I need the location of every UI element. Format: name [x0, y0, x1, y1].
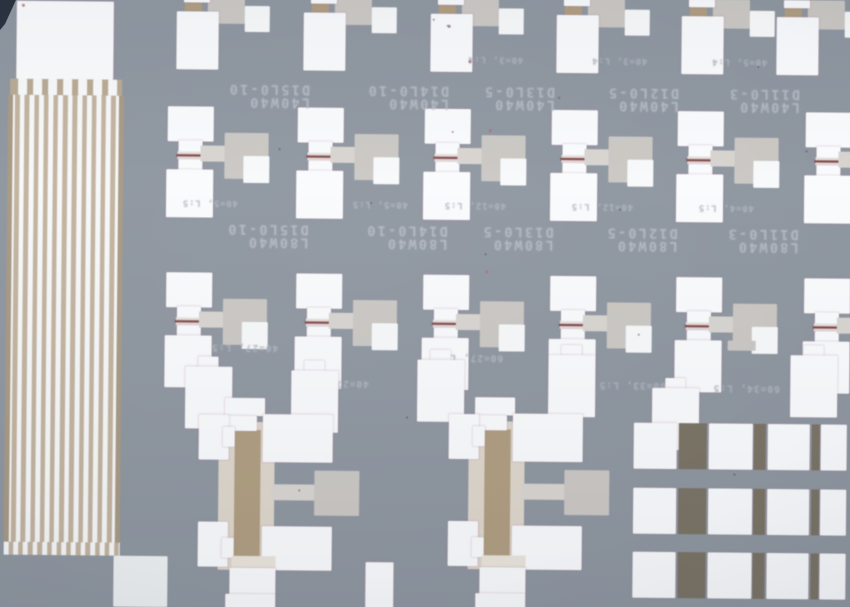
- grid-bond-pad: [820, 424, 846, 470]
- plate-window: [372, 7, 397, 33]
- serpentine-bottom-turns: [4, 542, 120, 556]
- device-annotation: 40=12, L:5: [442, 199, 508, 211]
- bond-pad: [303, 12, 346, 70]
- pad-neck: [784, 0, 810, 8]
- device-annotation: 60=34, L:5: [711, 381, 781, 394]
- dust-speck: [757, 66, 759, 68]
- pad-spacer: [677, 552, 705, 598]
- device-top-pad: [425, 109, 471, 144]
- pad-neck: [184, 0, 210, 3]
- dust-speck: [806, 150, 808, 152]
- pad-neck: [311, 0, 337, 4]
- device-bottom-pad: [804, 175, 850, 223]
- bond-pad: [790, 355, 838, 417]
- device-label: L40W40D11L0-3: [708, 85, 800, 113]
- actuator-right-pad: [513, 413, 583, 462]
- device-top-pad: [806, 112, 850, 147]
- bond-pad: [776, 17, 819, 75]
- grid-bond-pad: [632, 552, 675, 598]
- device-bottom-pad: [296, 170, 343, 218]
- grid-bond-pad: [708, 488, 752, 534]
- plate-arm: [329, 313, 355, 329]
- plate-window: [627, 160, 653, 187]
- grid-bond-pad: [766, 553, 808, 599]
- device-annotation: 40=5, L:5: [177, 196, 243, 208]
- plate-arm: [199, 311, 225, 327]
- serpentine-turn-tooth: [63, 79, 72, 95]
- pad-neck: [438, 0, 464, 5]
- pad-neck: [564, 0, 590, 6]
- plate-arm: [200, 145, 226, 161]
- device-annotation: 40=5, L:5: [347, 198, 413, 210]
- device-top-pad: [550, 276, 596, 311]
- device-name-text: D12L0-5: [587, 85, 679, 99]
- device-label: L40W40D13L0-5: [463, 83, 555, 111]
- pad-spacer: [752, 553, 764, 599]
- plate-window: [499, 8, 524, 34]
- serpentine-turn-tooth: [48, 79, 57, 95]
- defect-dot: [485, 270, 488, 273]
- device-name-text: D13L0-5: [463, 84, 555, 98]
- serpentine-stripe-field: [4, 95, 124, 543]
- serpentine-turn-tooth: [108, 80, 117, 96]
- grid-bond-pad: [708, 423, 752, 469]
- device-bottom-pad: [166, 169, 213, 217]
- plate-window: [500, 158, 526, 185]
- device-annotation: 40=5, L:4: [706, 55, 772, 67]
- device-top-pad: [804, 278, 850, 313]
- actuator-right-pad: [263, 414, 333, 463]
- plate-arm: [584, 149, 610, 165]
- pad-spacer: [753, 424, 765, 470]
- device-name-text: D15L0-10: [217, 222, 309, 236]
- actuator-bottom-pad: [475, 593, 525, 607]
- serpentine-turn-tooth: [78, 79, 87, 95]
- device-top-pad: [552, 110, 598, 145]
- plate-fragment: [728, 341, 756, 351]
- device-bottom-pad: [676, 174, 723, 222]
- plate-window: [626, 326, 652, 353]
- device-label: L40W40D14L0-10: [357, 82, 449, 110]
- grid-bond-pad: [633, 488, 676, 534]
- device-top-pad: [168, 106, 214, 141]
- plate-window: [243, 156, 269, 183]
- bond-pad: [365, 562, 393, 607]
- plate-window: [372, 323, 398, 350]
- dust-speck: [279, 148, 281, 150]
- device-annotation: 40=27, L:5: [210, 341, 280, 354]
- device-name-text: D11L0-3: [708, 86, 800, 100]
- pad-spacer: [678, 423, 706, 469]
- dust-speck: [619, 209, 621, 211]
- device-name-text: D14L0-10: [356, 223, 448, 237]
- defect-dot: [22, 4, 25, 7]
- device-label: L40W40D15L0-10: [218, 81, 310, 109]
- defect-dot: [468, 60, 471, 63]
- plate-arm: [457, 148, 483, 164]
- dust-speck: [485, 253, 487, 255]
- device-name-text: D13L0-5: [462, 224, 554, 238]
- dust-speck: [638, 334, 640, 336]
- device-bottom-pad: [423, 172, 470, 220]
- chip-micrograph: L40W40D15L0-10L80W40D15L0-1040=5, L:5L40…: [0, 0, 850, 607]
- device-label: L80W40D12L0-5: [586, 224, 678, 252]
- device-annotation: 40=12, L:5: [569, 200, 635, 212]
- plate-arm: [521, 484, 566, 500]
- device-label: L80W40D14L0-10: [356, 222, 448, 250]
- grid-bond-pad: [767, 489, 809, 535]
- actuator-side-pad: [472, 537, 484, 557]
- serpentine-turn-tooth: [93, 79, 102, 95]
- plate-arm: [330, 147, 356, 163]
- actuator-side-pad: [473, 426, 485, 446]
- dust-speck: [406, 416, 408, 418]
- plate-window: [625, 10, 650, 36]
- plate-window: [245, 6, 270, 32]
- plate-arm: [583, 315, 609, 331]
- plate-arm: [838, 152, 850, 168]
- pad-spacer: [753, 489, 765, 535]
- defect-dot: [489, 129, 492, 132]
- grid-bond-pad: [633, 423, 676, 469]
- plate-arm: [456, 314, 482, 330]
- device-annotation: 40=4, L:5: [693, 201, 759, 213]
- device-top-pad: [676, 277, 722, 312]
- device-bottom-pad: [550, 173, 597, 221]
- grid-bond-pad: [707, 552, 751, 598]
- device-top-pad: [423, 275, 469, 310]
- plate-window: [499, 324, 525, 351]
- actuator-bottom-pad: [225, 594, 275, 607]
- dust-speck: [298, 489, 300, 491]
- actuator-bar: [234, 430, 261, 556]
- device-name-text: D15L0-10: [218, 82, 310, 96]
- serpentine-top-pad: [16, 1, 114, 80]
- device-annotation: 40=3, L:4: [586, 54, 652, 66]
- actuator-bottom-neck: [229, 568, 275, 596]
- serpentine-turn-tooth: [18, 79, 27, 95]
- actuator-top-neck: [475, 397, 515, 415]
- bond-pad: [548, 355, 596, 417]
- dust-speck: [558, 97, 560, 99]
- grid-bond-pad: [767, 424, 809, 470]
- plate-arm: [710, 150, 736, 166]
- device-top-pad: [296, 273, 342, 308]
- device-annotation: 40=3, L:4: [462, 53, 528, 65]
- pad-spacer: [678, 488, 706, 534]
- actuator-side-pad: [222, 538, 234, 558]
- plate-arm: [271, 484, 316, 500]
- plate-window: [750, 11, 775, 37]
- device-top-pad: [166, 272, 212, 307]
- actuator-side-pad: [223, 427, 235, 447]
- bond-pad: [176, 11, 219, 69]
- dust-speck: [433, 19, 435, 21]
- pad-spacer: [810, 553, 818, 599]
- plate-window: [753, 161, 779, 188]
- plate-arm: [837, 318, 850, 334]
- actuator-bottom-neck: [479, 567, 525, 595]
- plate-arm: [709, 316, 735, 332]
- actuator-bar: [484, 429, 511, 555]
- serpentine-turn-tooth: [33, 79, 42, 95]
- device-name-text: D14L0-10: [357, 83, 449, 97]
- bond-pad: [417, 360, 465, 422]
- grid-bond-pad: [820, 489, 846, 535]
- device-label: L80W40D15L0-10: [217, 221, 309, 249]
- defect-dot: [452, 131, 454, 133]
- device-label: L40W40D12L0-5: [587, 84, 679, 112]
- device-name-text: D11L0-3: [707, 226, 799, 240]
- dust-speck: [370, 202, 372, 204]
- device-label: L80W40D11L0-3: [707, 225, 799, 253]
- pad-neck: [689, 0, 715, 7]
- device-top-pad: [298, 107, 344, 142]
- dust-speck: [733, 474, 735, 476]
- defect-dot: [447, 25, 449, 27]
- anchor-plate: [564, 470, 609, 515]
- pad-spacer: [811, 489, 819, 535]
- device-name-text: D12L0-5: [586, 225, 678, 239]
- bond-pad: [113, 556, 167, 607]
- grid-bond-pad: [819, 553, 845, 599]
- device-top-pad: [678, 111, 724, 146]
- plate-window: [373, 157, 399, 184]
- pad-spacer: [811, 424, 819, 470]
- anchor-plate: [314, 471, 359, 516]
- device-label: L80W40D13L0-5: [462, 223, 554, 251]
- actuator-top-neck: [225, 398, 265, 416]
- die-surface: L40W40D15L0-10L80W40D15L0-1040=5, L:5L40…: [0, 0, 850, 607]
- plate-window: [845, 12, 850, 38]
